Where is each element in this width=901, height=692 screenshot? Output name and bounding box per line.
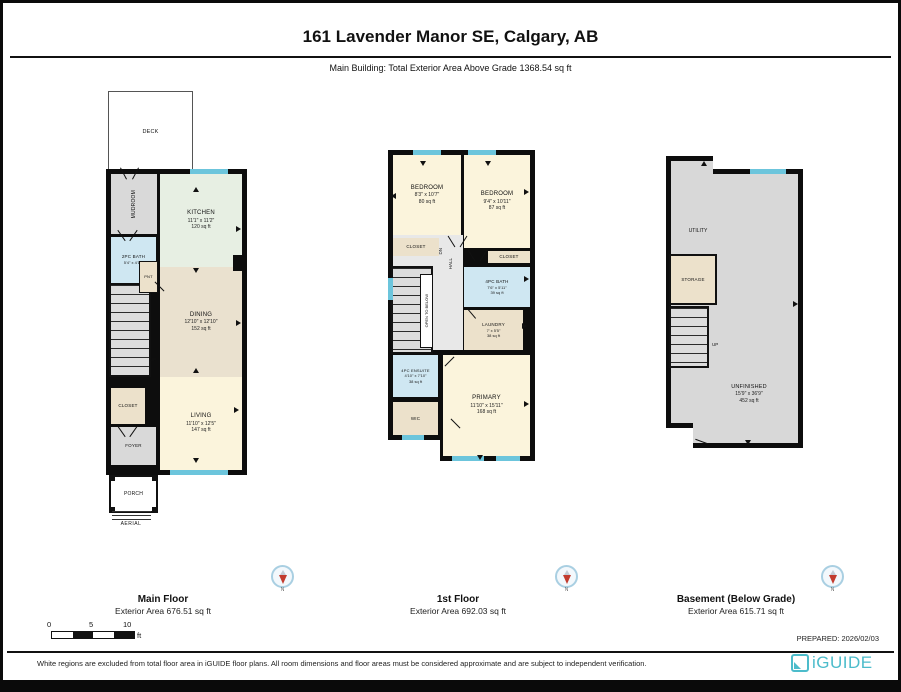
direction-arrow-icon [793, 301, 798, 307]
building-notch [388, 440, 440, 461]
compass-n-label: N [271, 587, 294, 593]
direction-arrow-icon [524, 401, 529, 407]
porch-steps [112, 511, 151, 520]
page-subtitle: Main Building: Total Exterior Area Above… [3, 63, 898, 73]
stairs-dn-label: DN [438, 248, 443, 255]
plan-first-floor: BEDROOM 8'3" x 10'7" 80 sq ft BEDROOM 9'… [388, 150, 535, 461]
scale-segment [73, 632, 94, 638]
room-name: PNT [144, 274, 153, 279]
iguide-logo-icon [791, 654, 809, 672]
scale-unit-label: ft [137, 631, 141, 640]
open-to-below-label: OPEN TO BELOW [424, 294, 429, 327]
porch-post [152, 475, 158, 481]
open-to-below-box: OPEN TO BELOW [420, 274, 433, 348]
disclaimer-text: White regions are excluded from total fl… [37, 659, 717, 668]
room-bedroom-1: BEDROOM 8'3" x 10'7" 80 sq ft [393, 155, 461, 235]
compass-needle-icon [563, 575, 571, 584]
room-4pc-ensuite: 4PC ENSUITE 4'10" x 7'10" 38 sq ft [393, 355, 438, 397]
room-area: 147 sq ft [191, 427, 210, 434]
stairs-up-label: UP [712, 342, 718, 347]
room-unfinished-label: UNFINISHED 15'9" x 36'9" 452 sq ft [704, 384, 794, 404]
room-closet: CLOSET [111, 388, 145, 424]
scale-segment [93, 632, 114, 638]
prepared-date: PREPARED: 2026/02/03 [693, 634, 879, 643]
footer-divider [7, 651, 894, 653]
stairs-up-label: UP [150, 357, 156, 362]
direction-arrow-icon [522, 323, 527, 329]
utility-label: UTILITY [674, 228, 722, 234]
room-area: 168 sq ft [477, 409, 496, 416]
floor-name: Main Floor [78, 594, 248, 605]
room-primary: PRIMARY 11'10" x 15'11" 168 sq ft [443, 355, 530, 456]
stairs-main [111, 285, 149, 375]
wall-stub [233, 255, 242, 271]
direction-arrow-icon [193, 368, 199, 373]
room-mudroom: MUDROOM [111, 174, 157, 234]
room-kitchen: KITCHEN 11'1" x 11'2" 120 sq ft [160, 174, 242, 267]
room-name: CLOSET [499, 254, 518, 260]
room-closet-2: CLOSET [488, 251, 530, 263]
room-name: BEDROOM [411, 185, 443, 193]
stairs-basement [671, 308, 707, 366]
iguide-logo-glyph [794, 662, 801, 669]
bottom-border-band [3, 680, 898, 689]
direction-arrow-icon [701, 161, 707, 166]
direction-arrow-icon [193, 187, 199, 192]
window [413, 150, 441, 155]
room-4pc-bath: 4PC BATH 7'6" x 5'11" 39 sq ft [464, 267, 530, 307]
floor-area: Exterior Area 676.51 sq ft [78, 606, 248, 616]
window [388, 278, 393, 300]
room-name: CLOSET [118, 403, 137, 409]
plan-main-floor: MUDROOM KITCHEN 11'1" x 11'2" 120 sq ft … [106, 169, 247, 475]
porch-post [152, 507, 158, 513]
room-closet-1: CLOSET [393, 238, 439, 256]
room-area: 152 sq ft [191, 326, 210, 333]
direction-arrow-icon [524, 189, 529, 195]
window [468, 150, 496, 155]
compass-needle-icon [829, 575, 837, 584]
compass-needle-icon [279, 575, 287, 584]
room-name: PORCH [124, 491, 143, 497]
room-porch: PORCH [109, 475, 158, 513]
scale-segment [114, 632, 135, 638]
window [170, 470, 228, 475]
room-name: BEDROOM [481, 191, 513, 199]
room-area: 87 sq ft [489, 205, 505, 212]
room-name: WIC [411, 416, 420, 422]
plan-basement: UTILITY STORAGE UP UNFINISHED 15'9" x 36… [666, 156, 803, 448]
aerial-label: AERIAL [106, 521, 156, 527]
window [402, 435, 424, 440]
direction-arrow-icon [193, 268, 199, 273]
window [496, 456, 520, 461]
room-bedroom-2: BEDROOM 9'4" x 10'11" 87 sq ft [464, 155, 530, 248]
iguide-logo-text: iGUIDE [812, 653, 873, 673]
scale-bar [51, 631, 135, 639]
window [750, 169, 786, 174]
room-area: 452 sq ft [704, 398, 794, 405]
direction-arrow-icon [485, 161, 491, 166]
scale-tick-5: 5 [89, 620, 93, 629]
room-name: DINING [190, 312, 212, 320]
room-area: 38 sq ft [487, 333, 500, 338]
floor-name: Basement (Below Grade) [651, 594, 821, 605]
room-foyer: FOYER [111, 427, 156, 465]
page-title: 161 Lavender Manor SE, Calgary, AB [3, 27, 898, 47]
room-area: 80 sq ft [419, 199, 435, 206]
porch-post [109, 475, 115, 481]
floor-label-first: 1st Floor Exterior Area 692.03 sq ft [373, 594, 543, 616]
hall-label: HALL [448, 258, 453, 269]
room-name: KITCHEN [187, 210, 215, 218]
room-area: 39 sq ft [490, 290, 503, 295]
floor-area: Exterior Area 615.71 sq ft [651, 606, 821, 616]
direction-arrow-icon [477, 455, 483, 460]
room-pantry: PNT [139, 261, 158, 293]
direction-arrow-icon [234, 407, 239, 413]
floor-area: Exterior Area 692.03 sq ft [373, 606, 543, 616]
scale-tick-0: 0 [47, 620, 51, 629]
room-area: 120 sq ft [191, 224, 210, 231]
floor-label-basement: Basement (Below Grade) Exterior Area 615… [651, 594, 821, 616]
room-name: CLOSET [406, 244, 425, 250]
room-wic: WIC [393, 402, 438, 435]
compass-n-label: N [821, 587, 844, 593]
compass-icon [271, 565, 294, 588]
compass-icon [821, 565, 844, 588]
direction-arrow-icon [236, 320, 241, 326]
room-living: LIVING 11'10" x 12'5" 147 sq ft [160, 377, 242, 470]
window [190, 169, 228, 174]
room-name: DECK [142, 129, 158, 135]
floor-name: 1st Floor [373, 594, 543, 605]
room-name: FOYER [125, 443, 142, 449]
scale-tick-10: 10 [123, 620, 131, 629]
building-notch [666, 428, 693, 448]
direction-arrow-icon [236, 226, 241, 232]
room-storage: STORAGE [671, 256, 715, 303]
room-name: UNFINISHED [704, 384, 794, 391]
header-divider [10, 56, 891, 58]
direction-arrow-icon [745, 440, 751, 445]
iguide-logo: iGUIDE [791, 653, 873, 673]
floor-label-main: Main Floor Exterior Area 676.51 sq ft [78, 594, 248, 616]
direction-arrow-icon [391, 193, 396, 199]
building-notch [713, 156, 803, 169]
room-name: LIVING [191, 413, 212, 421]
direction-arrow-icon [524, 276, 529, 282]
compass-icon [555, 565, 578, 588]
room-name: STORAGE [681, 277, 704, 283]
direction-arrow-icon [420, 161, 426, 166]
direction-arrow-icon [193, 458, 199, 463]
room-dining: DINING 12'10" x 12'10" 152 sq ft [160, 267, 242, 377]
compass-n-label: N [555, 587, 578, 593]
floorplan-page: 161 Lavender Manor SE, Calgary, AB Main … [0, 0, 901, 692]
scale-segment [52, 632, 73, 638]
room-deck: DECK [108, 91, 193, 173]
room-name: MUDROOM [131, 190, 138, 218]
room-name: PRIMARY [472, 395, 501, 403]
room-area: 38 sq ft [409, 379, 422, 384]
